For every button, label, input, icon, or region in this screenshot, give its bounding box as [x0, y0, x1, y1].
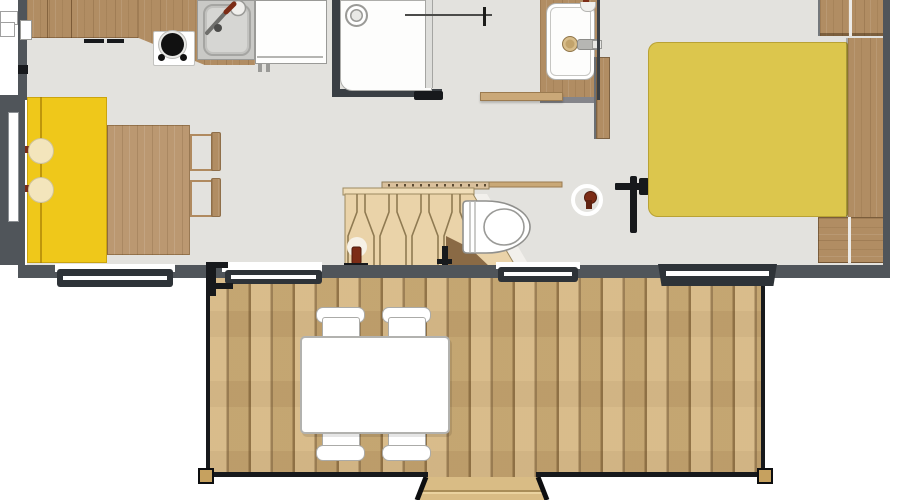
- fridge-front-line: [257, 56, 323, 58]
- sofa-cushion: [28, 138, 54, 164]
- deck-boards: [207, 278, 765, 477]
- kitchen-faucet: [195, 0, 255, 60]
- dining-chair-back: [211, 132, 221, 171]
- left-wall: [18, 0, 27, 100]
- drawer-handle: [84, 39, 104, 43]
- kitchen-counter: [27, 0, 143, 38]
- deck-steps: [414, 477, 550, 500]
- dimension-line: [405, 14, 492, 16]
- shower-wall: [332, 0, 340, 97]
- fridge-foot: [266, 63, 270, 72]
- hob-burner-large: [161, 33, 184, 56]
- deck-border-bottom-right: [536, 472, 765, 477]
- dining-chair-back: [211, 178, 221, 217]
- sliding-door-hinge: [210, 262, 216, 296]
- sliding-door-hinge: [208, 283, 233, 289]
- dimension-tick: [483, 7, 486, 26]
- hob-burner-small: [158, 54, 165, 61]
- interior-door-leaf: [630, 176, 637, 233]
- shower-threshold: [414, 91, 443, 100]
- wardrobe: [820, 0, 884, 36]
- drawer-handle: [107, 39, 124, 43]
- fridge: [255, 0, 327, 64]
- floor-plan: [0, 0, 900, 500]
- nightstand-gap: [848, 217, 851, 263]
- hob-burner-small: [180, 54, 187, 61]
- dining-table: [107, 125, 190, 255]
- nightstands: [818, 217, 886, 263]
- left-window-glass: [8, 112, 19, 222]
- window-glass: [504, 272, 572, 276]
- right-wall: [883, 0, 890, 278]
- window-glass: [63, 276, 167, 280]
- deck-border-bottom-left: [206, 472, 428, 477]
- counter-seam: [47, 0, 48, 38]
- toilet: [458, 196, 538, 258]
- shower-drain: [345, 4, 368, 27]
- deck-border-right: [761, 284, 765, 477]
- deck-post: [198, 468, 214, 484]
- fridge-foot: [258, 63, 262, 72]
- outdoor-chair-backrest: [316, 445, 365, 461]
- basin-drain: [562, 36, 578, 52]
- exterior-fitting: [0, 22, 15, 37]
- outdoor-table: [300, 336, 450, 434]
- door-handle-stem: [586, 200, 592, 209]
- wardrobe-door-gap: [849, 0, 852, 36]
- bay-window-glass: [666, 271, 769, 276]
- wall-shelf: [480, 92, 563, 101]
- left-wall-door-panel: [20, 20, 32, 40]
- double-bed: [648, 42, 848, 217]
- counter-seam: [71, 0, 72, 38]
- bathroom-wall-edge: [597, 0, 600, 100]
- outdoor-chair-backrest: [382, 445, 431, 461]
- headboard: [848, 38, 884, 217]
- deck-post: [757, 468, 773, 484]
- sliding-door-glass: [231, 275, 316, 279]
- left-wall-hinge: [18, 65, 28, 74]
- sofa-cushion: [28, 177, 54, 203]
